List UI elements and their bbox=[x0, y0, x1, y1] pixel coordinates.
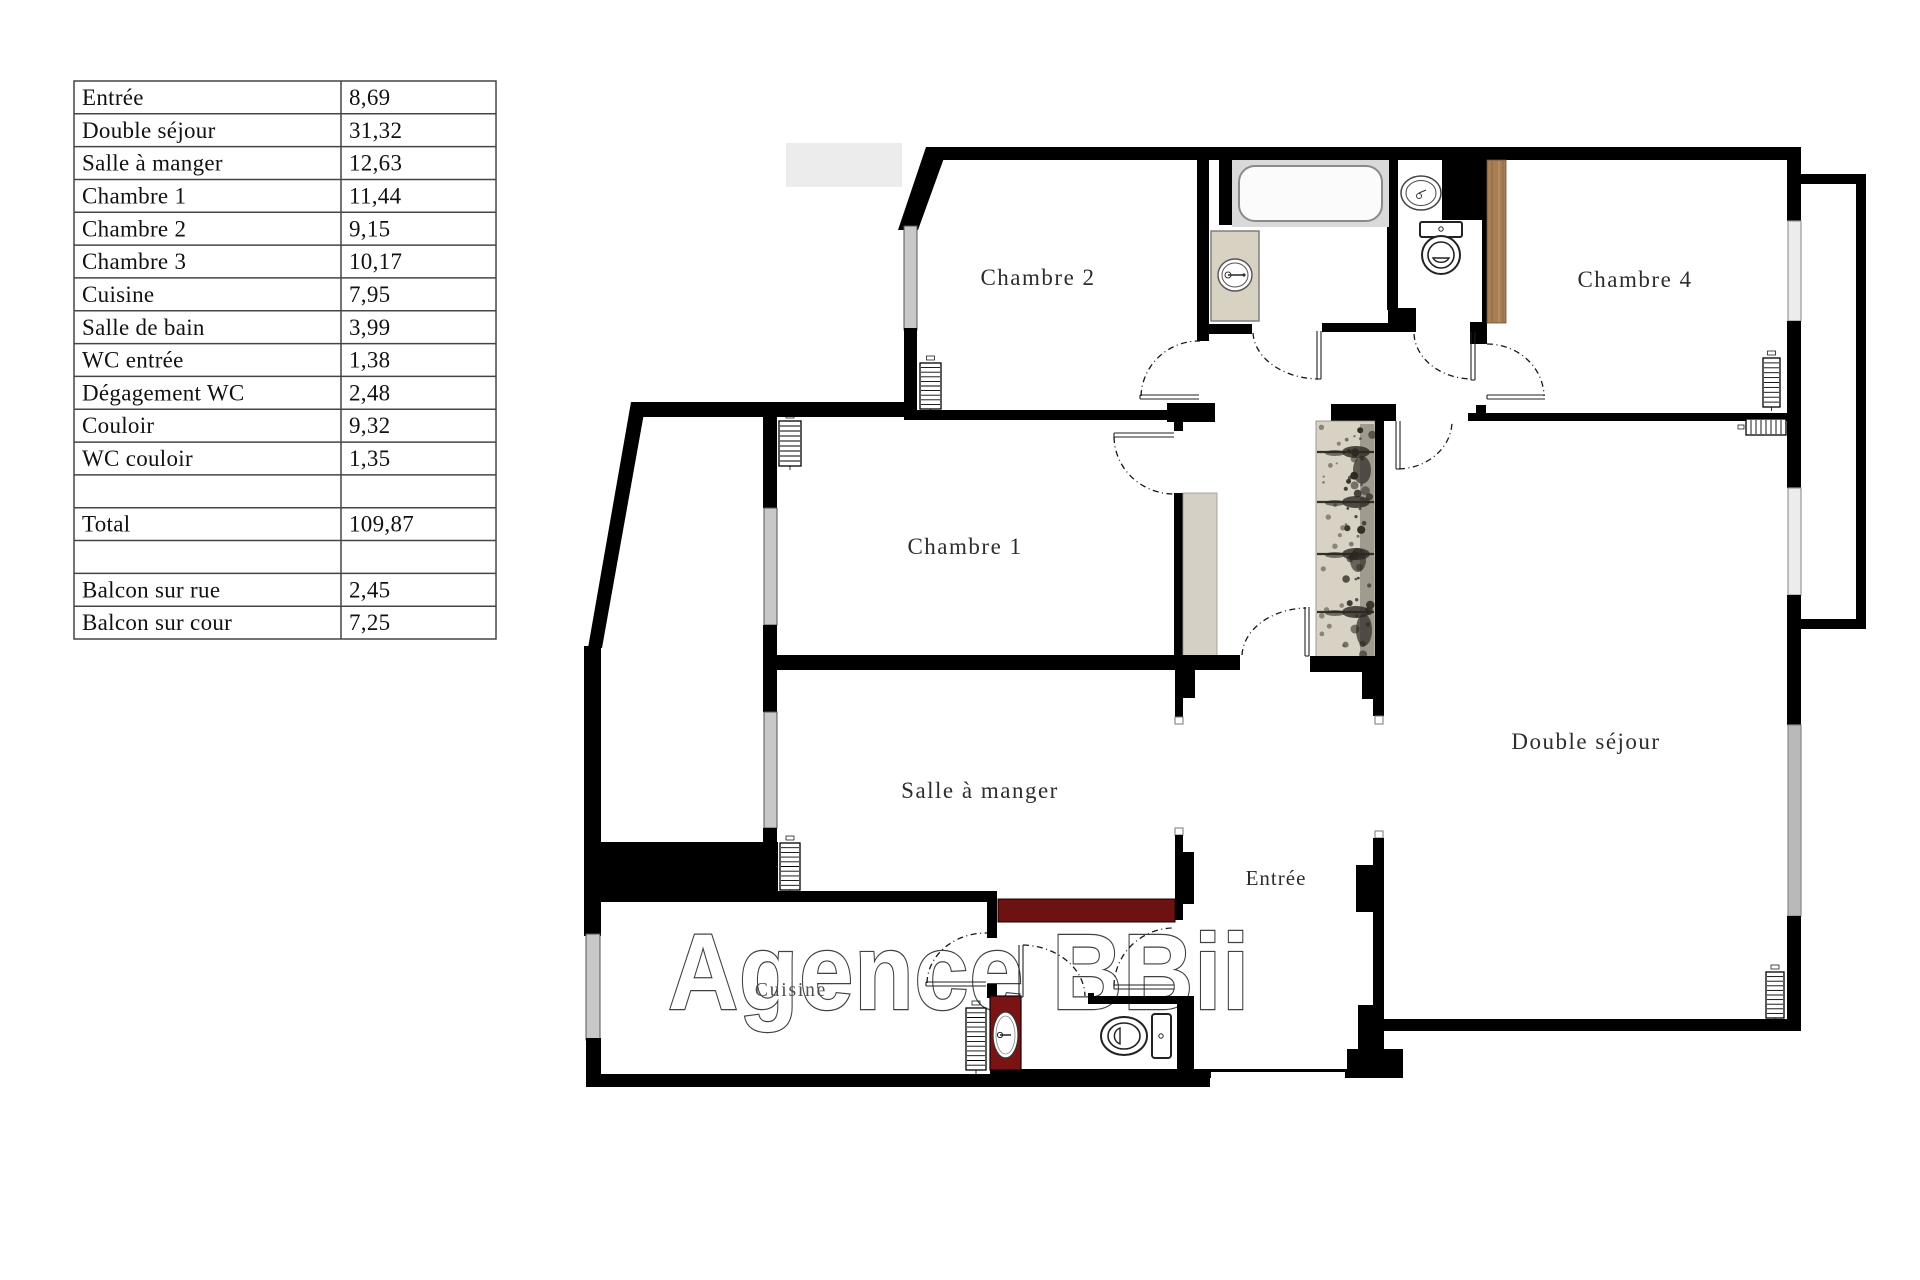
svg-text:1,38: 1,38 bbox=[349, 348, 390, 373]
svg-text:Chambre 1: Chambre 1 bbox=[82, 184, 186, 209]
svg-text:31,32: 31,32 bbox=[349, 118, 402, 143]
svg-text:Chambre 1: Chambre 1 bbox=[907, 534, 1022, 559]
svg-text:2,48: 2,48 bbox=[349, 380, 390, 405]
svg-text:Cuisine: Cuisine bbox=[82, 282, 154, 307]
svg-text:Balcon sur cour: Balcon sur cour bbox=[82, 610, 232, 635]
svg-text:Entrée: Entrée bbox=[82, 85, 144, 110]
svg-text:Total: Total bbox=[82, 512, 130, 537]
svg-text:Salle à manger: Salle à manger bbox=[901, 778, 1059, 803]
svg-text:Cuisine: Cuisine bbox=[755, 980, 827, 1001]
svg-text:WC entrée: WC entrée bbox=[82, 348, 184, 373]
svg-text:Salle à manger: Salle à manger bbox=[82, 151, 223, 176]
svg-text:10,17: 10,17 bbox=[349, 249, 402, 274]
svg-text:Double séjour: Double séjour bbox=[82, 118, 216, 143]
svg-text:WC couloir: WC couloir bbox=[82, 446, 193, 471]
svg-text:Couloir: Couloir bbox=[82, 413, 154, 438]
svg-text:Double séjour: Double séjour bbox=[1511, 729, 1660, 754]
svg-text:Balcon sur rue: Balcon sur rue bbox=[82, 577, 220, 602]
svg-text:9,32: 9,32 bbox=[349, 413, 390, 438]
svg-text:Chambre 4: Chambre 4 bbox=[1577, 267, 1692, 292]
svg-text:Dégagement WC: Dégagement WC bbox=[82, 380, 245, 405]
svg-text:7,25: 7,25 bbox=[349, 610, 390, 635]
svg-text:11,44: 11,44 bbox=[349, 184, 402, 209]
svg-text:Chambre 2: Chambre 2 bbox=[82, 216, 186, 241]
svg-text:Entrée: Entrée bbox=[1246, 866, 1307, 890]
svg-text:1,35: 1,35 bbox=[349, 446, 390, 471]
svg-text:7,95: 7,95 bbox=[349, 282, 390, 307]
svg-text:2,45: 2,45 bbox=[349, 577, 390, 602]
svg-text:109,87: 109,87 bbox=[349, 512, 414, 537]
svg-text:3,99: 3,99 bbox=[349, 315, 390, 340]
svg-text:9,15: 9,15 bbox=[349, 216, 390, 241]
svg-text:Salle de bain: Salle de bain bbox=[82, 315, 205, 340]
svg-text:12,63: 12,63 bbox=[349, 151, 402, 176]
svg-text:Chambre 2: Chambre 2 bbox=[980, 265, 1095, 290]
svg-text:Chambre 3: Chambre 3 bbox=[82, 249, 186, 274]
svg-text:8,69: 8,69 bbox=[349, 85, 390, 110]
